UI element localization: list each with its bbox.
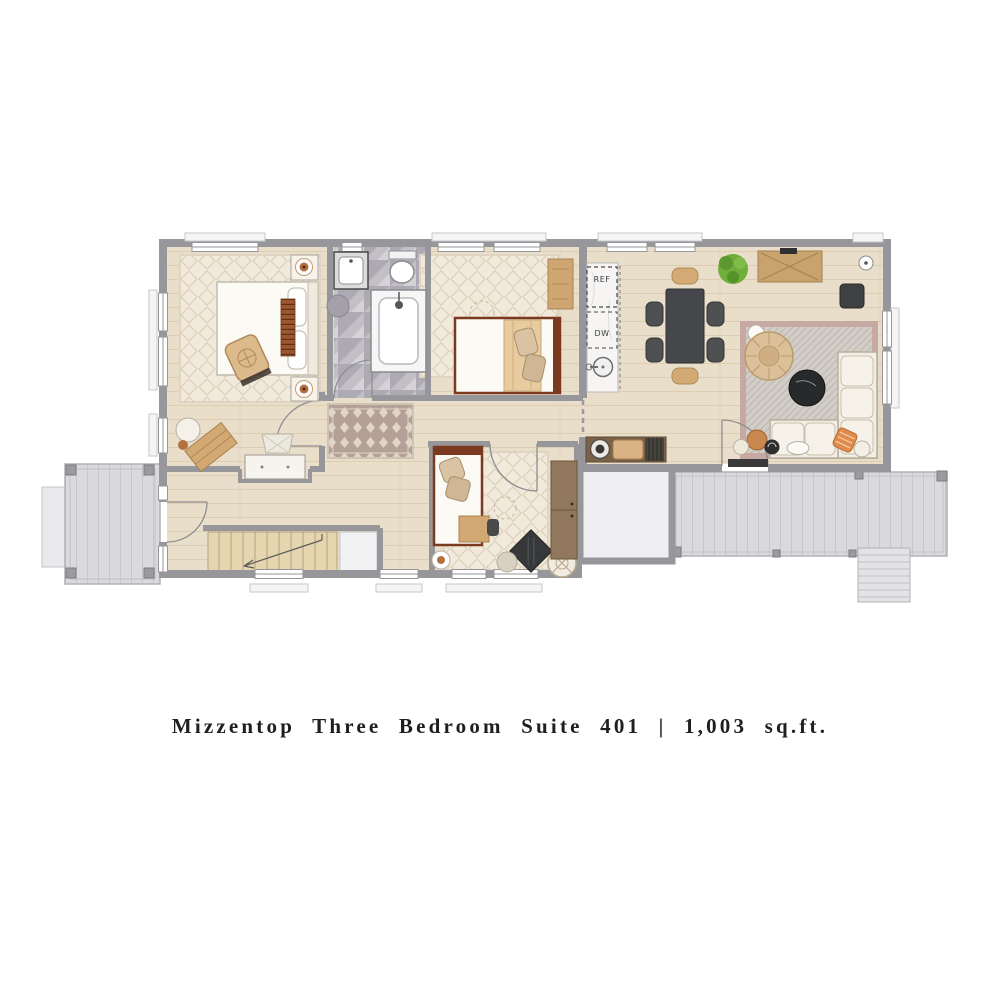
ceiling-light (859, 256, 873, 270)
desk-chair-dark (487, 519, 499, 536)
shower (371, 290, 426, 372)
vanity-sink (334, 252, 368, 289)
deck-post (849, 550, 856, 557)
bed-bedroom2 (455, 318, 560, 393)
nightstand (291, 377, 318, 401)
porch-post (66, 465, 76, 475)
hall-runner-rug (328, 404, 413, 458)
round-lounge-chair (745, 332, 793, 380)
side-table-cream (734, 440, 749, 455)
toilet (389, 251, 416, 283)
decor-bowl (765, 440, 780, 455)
pouf (497, 552, 517, 572)
side-table-knob (432, 551, 450, 569)
desk-chair (176, 418, 200, 442)
dishwasher-label: DW (594, 329, 609, 338)
coffee-table (789, 370, 825, 406)
porch-post (144, 568, 154, 578)
dining-table (666, 289, 704, 363)
dining-chair-wood (672, 268, 698, 284)
stair-annex (580, 462, 672, 561)
floor-plan-drawing: REF DW (0, 0, 1000, 1000)
deck-post (855, 471, 863, 479)
fringe-pillow (854, 441, 870, 457)
wardrobe (551, 461, 577, 559)
nightstand (291, 255, 318, 280)
decor-tray (787, 442, 809, 455)
dining-chair-wood (672, 368, 698, 384)
shower-head (395, 301, 403, 309)
side-table-wood (747, 430, 767, 450)
stair-vestibule (340, 532, 377, 571)
left-porch (65, 464, 160, 584)
porch-post (144, 465, 154, 475)
deck-post (773, 550, 780, 557)
plan-caption: Mizzentop Three Bedroom Suite 401 | 1,00… (0, 714, 1000, 739)
refrigerator-label: REF (594, 275, 611, 284)
porch-post (66, 568, 76, 578)
kitchen-lower-counter (586, 437, 666, 462)
deck-post (937, 471, 947, 481)
bed-runner (281, 299, 295, 356)
bath-stool (327, 295, 349, 317)
deck-stairs (858, 548, 910, 602)
interior-stairs (208, 532, 337, 574)
potted-plant (718, 254, 748, 284)
right-deck (671, 471, 947, 602)
stool (840, 284, 864, 308)
console-sideboard (758, 248, 822, 282)
floor-plan-page: REF DW (0, 0, 1000, 1000)
door-mat (728, 459, 768, 467)
decor-pot (178, 440, 188, 450)
cutting-board (613, 440, 643, 459)
